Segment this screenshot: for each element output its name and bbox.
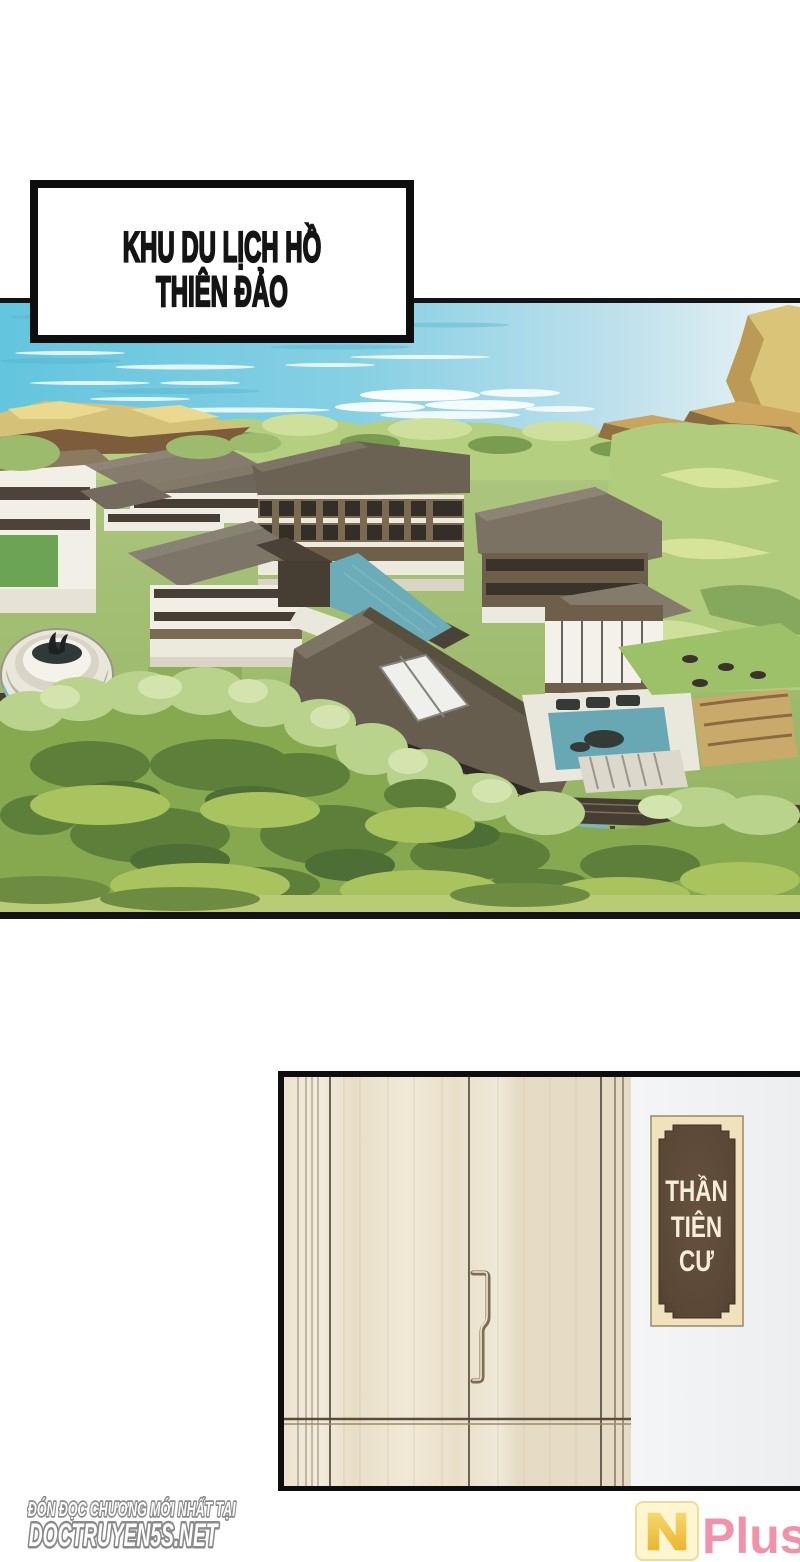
svg-text:DOCTRUYEN5S.NET: DOCTRUYEN5S.NET (29, 1517, 219, 1553)
svg-text:CƯ: CƯ (679, 1244, 714, 1278)
svg-text:Plus: Plus (702, 1508, 800, 1562)
svg-text:TIÊN: TIÊN (671, 1210, 722, 1244)
svg-text:THẦN: THẦN (665, 1174, 727, 1208)
